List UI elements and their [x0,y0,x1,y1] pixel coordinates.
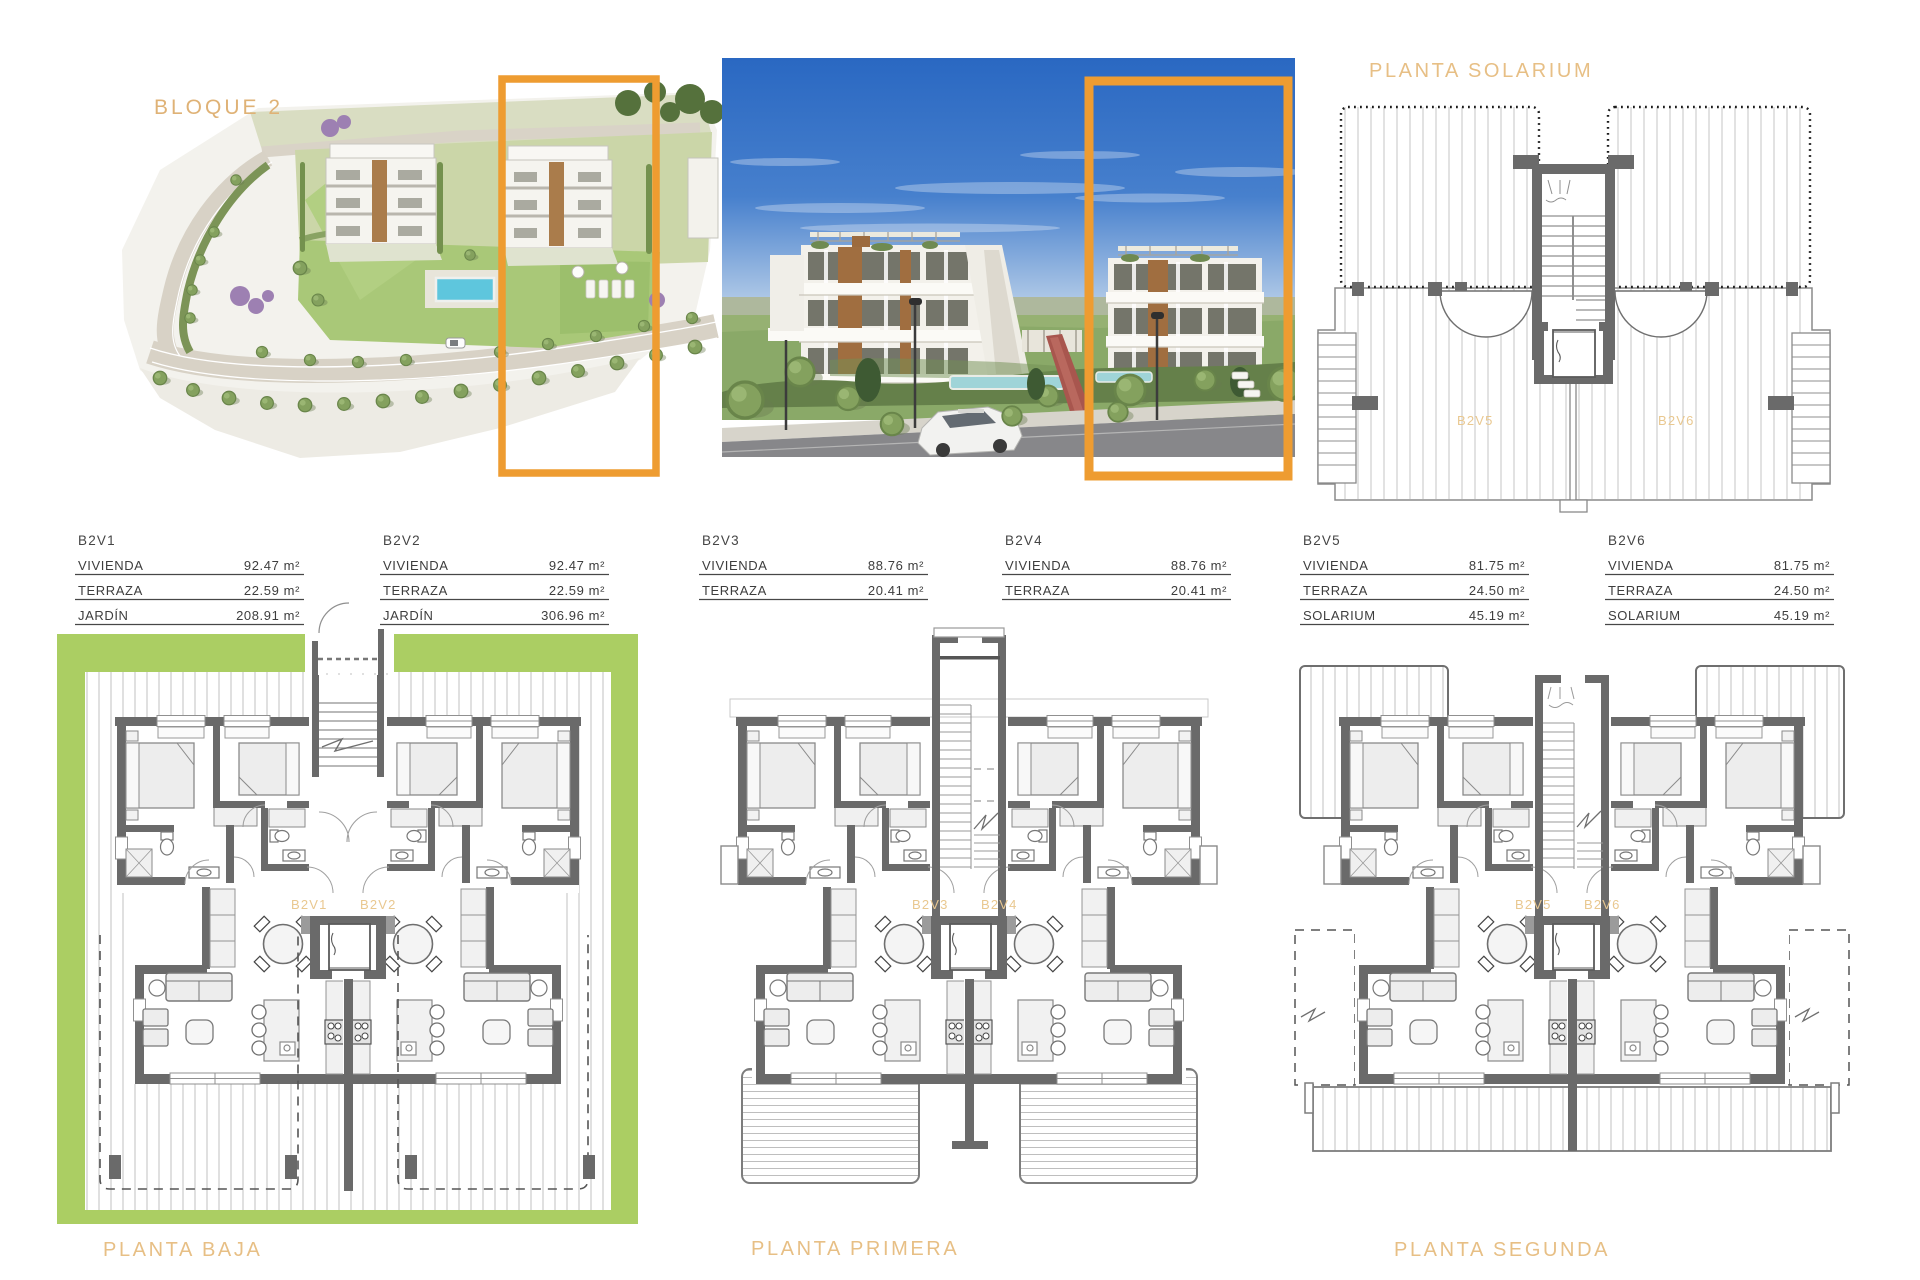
svg-text:PLANTA SOLARIUM: PLANTA SOLARIUM [1369,60,1593,82]
svg-text:TERRAZA: TERRAZA [1005,583,1070,598]
svg-text:VIVIENDA: VIVIENDA [78,558,143,573]
svg-text:TERRAZA: TERRAZA [78,583,143,598]
svg-text:PLANTA SEGUNDA: PLANTA SEGUNDA [1394,1239,1610,1261]
svg-text:208.91 m²: 208.91 m² [236,608,300,623]
svg-text:VIVIENDA: VIVIENDA [1303,558,1368,573]
svg-text:88.76 m²: 88.76 m² [868,558,924,573]
svg-text:TERRAZA: TERRAZA [1608,583,1673,598]
svg-text:81.75 m²: 81.75 m² [1469,558,1525,573]
svg-text:BLOQUE 2: BLOQUE 2 [154,96,283,119]
svg-text:VIVIENDA: VIVIENDA [383,558,448,573]
svg-text:20.41 m²: 20.41 m² [1171,583,1227,598]
svg-text:TERRAZA: TERRAZA [702,583,767,598]
svg-text:B2V6: B2V6 [1608,533,1646,548]
svg-text:B2V5: B2V5 [1457,413,1494,428]
svg-text:92.47 m²: 92.47 m² [549,558,605,573]
svg-text:B2V3: B2V3 [912,897,949,912]
svg-text:B2V1: B2V1 [78,533,116,548]
svg-text:B2V4: B2V4 [981,897,1018,912]
svg-text:306.96 m²: 306.96 m² [541,608,605,623]
svg-text:B2V5: B2V5 [1515,897,1552,912]
svg-text:TERRAZA: TERRAZA [383,583,448,598]
svg-text:VIVIENDA: VIVIENDA [1608,558,1673,573]
svg-text:22.59 m²: 22.59 m² [244,583,300,598]
svg-text:VIVIENDA: VIVIENDA [1005,558,1070,573]
svg-text:B2V4: B2V4 [1005,533,1043,548]
svg-text:24.50 m²: 24.50 m² [1774,583,1830,598]
svg-text:92.47 m²: 92.47 m² [244,558,300,573]
svg-text:B2V2: B2V2 [383,533,421,548]
svg-text:JARDÍN: JARDÍN [78,608,129,623]
svg-text:45.19 m²: 45.19 m² [1774,608,1830,623]
svg-text:88.76 m²: 88.76 m² [1171,558,1227,573]
svg-text:B2V5: B2V5 [1303,533,1341,548]
svg-text:B2V3: B2V3 [702,533,740,548]
svg-text:20.41 m²: 20.41 m² [868,583,924,598]
svg-text:B2V1: B2V1 [291,897,328,912]
svg-text:SOLARIUM: SOLARIUM [1303,608,1376,623]
svg-text:22.59 m²: 22.59 m² [549,583,605,598]
svg-text:PLANTA PRIMERA: PLANTA PRIMERA [751,1238,959,1260]
svg-text:81.75 m²: 81.75 m² [1774,558,1830,573]
svg-text:SOLARIUM: SOLARIUM [1608,608,1681,623]
svg-text:45.19 m²: 45.19 m² [1469,608,1525,623]
svg-text:B2V2: B2V2 [360,897,397,912]
svg-text:B2V6: B2V6 [1584,897,1621,912]
svg-text:B2V6: B2V6 [1658,413,1695,428]
svg-text:TERRAZA: TERRAZA [1303,583,1368,598]
svg-text:VIVIENDA: VIVIENDA [702,558,767,573]
svg-text:24.50 m²: 24.50 m² [1469,583,1525,598]
svg-text:JARDÍN: JARDÍN [383,608,434,623]
svg-text:PLANTA BAJA: PLANTA BAJA [103,1239,262,1261]
